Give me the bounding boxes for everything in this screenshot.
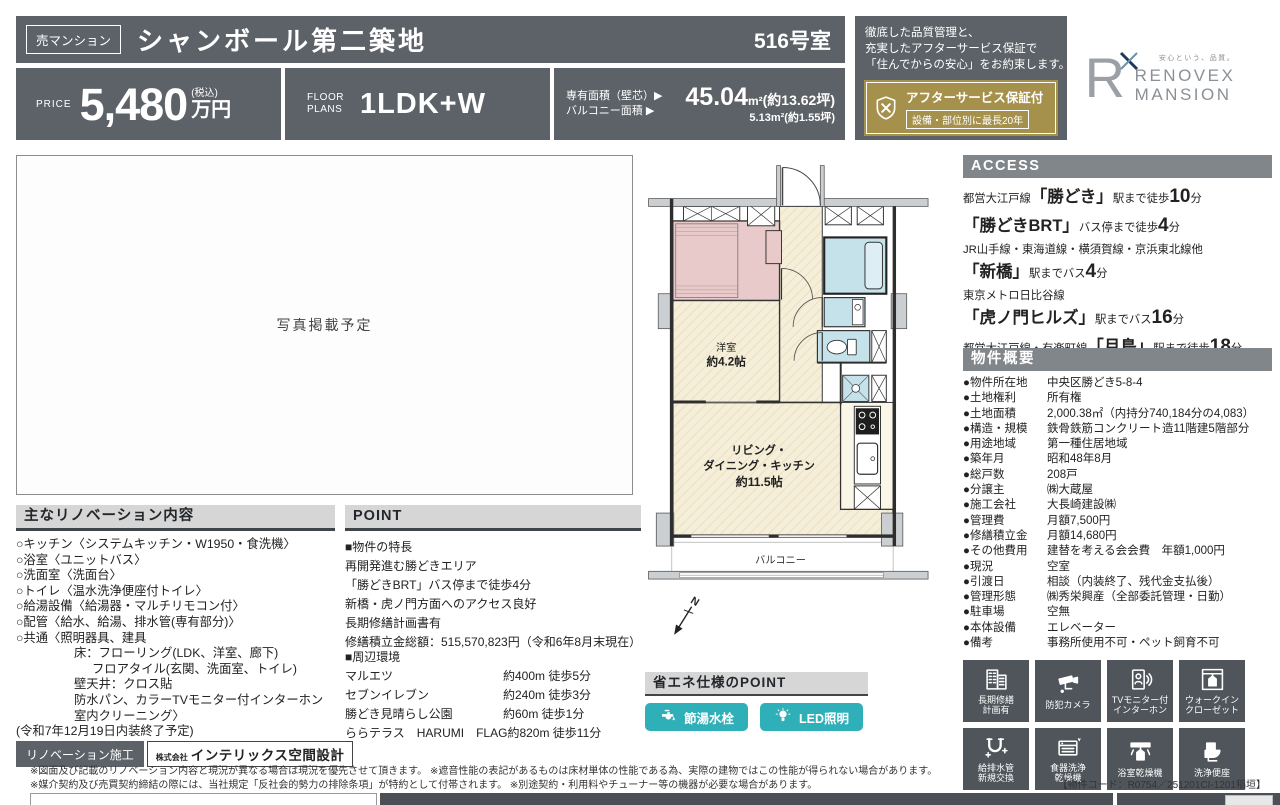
property-code: 【物件コード：R0754／251201CI-1201稲垣】	[1058, 776, 1270, 791]
footer-line-2: ※媒介契約及び売買契約締結の際には、当社規定「反社会的勢力の排除条項」が特約とし…	[30, 776, 1270, 791]
floor-plan-value: 1LDK+W	[360, 88, 486, 121]
overview-row: ●構造・規模鉄骨鉄筋コンクリート造11階建5階部分	[963, 422, 1271, 437]
overview-heading: 物件概要	[963, 348, 1272, 371]
floor-label-line2: PLANS	[307, 104, 342, 115]
overview-row: ●施工会社大長崎建設㈱	[963, 498, 1271, 513]
route-text: JR山手線・東海道線・横須賀線・京浜東北線他	[963, 241, 1203, 257]
overview-row: ●修繕積立金月額14,680円	[963, 529, 1271, 544]
pipe-replacement-icon	[984, 735, 1009, 760]
station-name: 「虎ノ門ヒルズ」	[963, 304, 1095, 328]
station-name: 「勝どきBRT」	[963, 212, 1079, 236]
overview-label: ●築年月	[963, 452, 1047, 467]
assurance-text: 徹底した品質管理と、 充実したアフターサービス保証で 「住んでからの安心」をお約…	[855, 16, 1067, 73]
renovation-item: ○給湯設備〈給湯器・マルチリモコン付〉	[16, 599, 346, 615]
svg-text:N: N	[688, 595, 701, 609]
assurance-line1: 徹底した品質管理と、	[865, 27, 980, 39]
access-route: 「勝どきBRT」バス停まで徒歩4分	[963, 212, 1268, 237]
overview-value: 月額7,500円	[1047, 514, 1271, 529]
renovation-item: ○キッチン〈システムキッチン・W1950・食洗機〉	[16, 537, 346, 553]
point-heading: POINT	[345, 505, 641, 531]
access-route: 東京メトロ日比谷線「虎ノ門ヒルズ」駅までバス16分	[963, 287, 1268, 329]
overview-row: ●物件所在地中央区勝どき5-8-4	[963, 376, 1271, 391]
overview-row: ●分譲主㈱大蔵屋	[963, 483, 1271, 498]
overview-row: ●本体設備エレベーター	[963, 621, 1271, 636]
renovation-heading: 主なリノベーション内容	[16, 505, 335, 531]
exclusive-area-value: 45.04	[685, 83, 748, 111]
bulb-icon	[774, 707, 792, 728]
feature-item: 新橋・虎ノ門方面へのアクセス良好	[345, 595, 645, 614]
floor-plans-label: FLOOR PLANS	[307, 92, 344, 116]
feature-item: 再開発進む勝どきエリア	[345, 557, 645, 576]
surrounding-name: 勝どき見晴らし公園	[345, 705, 503, 724]
overview-value: 事務所使用不可・ペット飼育不可	[1047, 636, 1271, 651]
area-box: 専有面積（壁芯）▶ バルコニー面積 ▶ 45.04m²(約13.62坪) 5.1…	[554, 68, 845, 140]
eco-button-label: LED照明	[799, 708, 849, 727]
photo-placeholder-text: 写真掲載予定	[277, 315, 373, 335]
feature-tile-label-line: インターホン	[1112, 705, 1169, 715]
balcony-area-label: バルコニー面積 ▶	[566, 105, 654, 117]
overview-value: 月額14,680円	[1047, 529, 1271, 544]
ldk-label-2: ダイニング・キッチン	[703, 458, 815, 472]
tv-intercom-icon	[1128, 667, 1153, 692]
badge-subtitle: 設備・部位別に最長20年	[906, 110, 1029, 129]
access-route: JR山手線・東海道線・横須賀線・京浜東北線他「新橋」駅までバス4分	[963, 241, 1268, 283]
surrounding-name: セブンイレブン	[345, 686, 503, 705]
assurance-box: 徹底した品質管理と、 充実したアフターサービス保証で 「住んでからの安心」をお約…	[855, 16, 1067, 140]
feature-tile: 防犯カメラ	[1035, 660, 1101, 722]
brand-text: 安心という、品質。 RENOVEX MANSION	[1135, 53, 1236, 104]
footer-bar-dark	[380, 793, 1113, 805]
minutes-value: 4	[1158, 215, 1169, 237]
exclusive-area-tsubo: (約13.62坪)	[763, 92, 835, 108]
photo-placeholder: 写真掲載予定	[16, 155, 633, 495]
overview-value: 2,000.38㎡（内持分740,184分の4,083）	[1047, 407, 1271, 422]
overview-row: ●土地権利所有権	[963, 391, 1271, 406]
surroundings-heading: ■周辺環境	[345, 648, 645, 667]
feature-item: 「勝どきBRT」バス停まで徒歩4分	[345, 576, 645, 595]
features-list: 再開発進む勝どきエリア「勝どきBRT」バス停まで徒歩4分新橋・虎ノ門方面へのアク…	[345, 557, 645, 652]
overview-value: 相談（内装終了、残代金支払後）	[1047, 575, 1271, 590]
overview-value: 第一種住居地域	[1047, 437, 1271, 452]
floor-plan: 洋室 約4.2帖 リビング・ ダイニング・キッチン 約11.5帖 バルコニー N	[633, 150, 963, 650]
feature-item: 長期修繕計画書有	[345, 614, 645, 633]
route-text: 駅までバス	[1029, 265, 1086, 281]
exclusive-area-unit: m²	[748, 94, 763, 108]
balcony-label: バルコニー	[755, 555, 806, 567]
rx-mark: R	[1085, 47, 1129, 109]
price-value: 5,480	[80, 82, 188, 127]
overview-value: ㈱大蔵屋	[1047, 483, 1271, 498]
overview-row: ●管理費月額7,500円	[963, 514, 1271, 529]
shield-tools-icon	[873, 95, 899, 121]
overview-value: 大長崎建設㈱	[1047, 498, 1271, 513]
eco-heading: 省エネ仕様のPOINT	[645, 672, 868, 696]
surrounding-row: 勝どき見晴らし公園約60m 徒歩1分	[345, 705, 645, 724]
surroundings-block: ■周辺環境 マルエツ約400m 徒歩5分セブンイレブン約240m 徒歩3分勝どき…	[345, 648, 645, 743]
footer-note-2: ※媒介契約及び売買契約締結の際には、当社規定「反社会的勢力の排除条項」が特約とし…	[30, 776, 817, 791]
assurance-line2: 充実したアフターサービス保証で	[865, 43, 1037, 55]
overview-row: ●総戸数208戸	[963, 468, 1271, 483]
overview-row: ●築年月昭和48年8月	[963, 452, 1271, 467]
feature-tile: TVモニター付インターホン	[1107, 660, 1173, 722]
overview-value: ㈱秀栄興産（全部委託管理・日勤）	[1047, 590, 1271, 605]
overview-label: ●駐車場	[963, 605, 1047, 620]
surrounding-row: マルエツ約400m 徒歩5分	[345, 667, 645, 686]
ldk-size: 約11.5帖	[736, 474, 783, 489]
surrounding-name: ららテラス HARUMI FLAG	[345, 724, 507, 743]
price-label: PRICE	[36, 99, 72, 110]
feature-tile: ウォークインクローゼット	[1179, 660, 1245, 722]
minutes-value: 10	[1169, 186, 1190, 208]
feature-tile-label-line: 計画有	[978, 705, 1014, 715]
renovation-item: ○浴室〈ユニットバス〉	[16, 553, 346, 569]
overview-value: 中央区勝どき5-8-4	[1047, 376, 1271, 391]
overview-label: ●管理形態	[963, 590, 1047, 605]
renovation-item: ○配管〈給水、給湯、排水管(専有部分)〉	[16, 615, 346, 631]
overview-table: ●物件所在地中央区勝どき5-8-4●土地権利所有権●土地面積2,000.38㎡（…	[963, 376, 1271, 651]
room-number: 516号室	[754, 25, 831, 55]
surrounding-distance: 約60m 徒歩1分	[503, 705, 584, 724]
eco-buttons: 節湯水栓LED照明	[645, 703, 863, 731]
faucet-icon	[659, 707, 677, 728]
surrounding-row: セブンイレブン約240m 徒歩3分	[345, 686, 645, 705]
price-tax-note: (税込)	[191, 88, 231, 99]
overview-value: 建替を考える会会費 年額1,000円	[1047, 544, 1271, 559]
building-title: シャンボール第二築地	[137, 21, 427, 58]
area-values: 45.04m²(約13.62坪) 5.13m²(約1.55坪)	[670, 83, 835, 125]
access-line: JR山手線・東海道線・横須賀線・京浜東北線他	[963, 241, 1268, 257]
feature-tile-label: 長期修繕計画有	[978, 695, 1014, 715]
surroundings-list: マルエツ約400m 徒歩5分セブンイレブン約240m 徒歩3分勝どき見晴らし公園…	[345, 667, 645, 743]
north-arrow-icon: N	[670, 594, 702, 637]
route-text: バス停まで徒歩	[1079, 219, 1158, 235]
access-line: 「新橋」駅までバス4分	[963, 258, 1268, 283]
overview-value: 鉄骨鉄筋コンクリート造11階建5階部分	[1047, 422, 1271, 437]
floor-label-line1: FLOOR	[307, 92, 344, 103]
title-bar: 売マンション シャンボール第二築地 516号室	[16, 16, 845, 63]
overview-row: ●引渡日相談（内装終了、残代金支払後）	[963, 575, 1271, 590]
overview-label: ●構造・規模	[963, 422, 1047, 437]
feature-tile-label-line: TVモニター付	[1112, 695, 1169, 705]
renovation-item: (令和7年12月19日内装終了予定)	[16, 724, 346, 740]
overview-value: 昭和48年8月	[1047, 452, 1271, 467]
surrounding-distance: 約820m 徒歩11分	[507, 724, 601, 743]
surrounding-distance: 約240m 徒歩3分	[503, 686, 591, 705]
renovation-item: ○トイレ〈温水洗浄便座付トイレ〉	[16, 584, 346, 600]
route-text: 分	[1169, 219, 1180, 235]
surrounding-distance: 約400m 徒歩5分	[503, 667, 591, 686]
renovation-item: 室内クリーニング〉	[16, 709, 346, 725]
assurance-line3: 「住んでからの安心」をお約束します。	[865, 59, 1070, 71]
overview-value: エレベーター	[1047, 621, 1271, 636]
minutes-value: 4	[1086, 261, 1097, 283]
overview-label: ●土地権利	[963, 391, 1047, 406]
renovation-item: ○洗面室〈洗面台〉	[16, 568, 346, 584]
overview-row: ●現況空室	[963, 560, 1271, 575]
access-route: 都営大江戸線「勝どき」駅まで徒歩10分	[963, 183, 1268, 208]
area-labels: 専有面積（壁芯）▶ バルコニー面積 ▶	[566, 89, 662, 119]
flyer-page: 売マンション シャンボール第二築地 516号室 PRICE 5,480 (税込)…	[0, 0, 1280, 805]
eco-button-label: 節湯水栓	[684, 708, 734, 727]
feature-tile: 長期修繕計画有	[963, 660, 1029, 722]
overview-row: ●その他費用建替を考える会会費 年額1,000円	[963, 544, 1271, 559]
overview-label: ●施工会社	[963, 498, 1047, 513]
brand-tagline: 安心という、品質。	[1135, 53, 1236, 63]
route-text: 駅まで徒歩	[1113, 190, 1170, 206]
access-heading: ACCESS	[963, 155, 1272, 178]
overview-value: 空無	[1047, 605, 1271, 620]
security-camera-icon	[1056, 672, 1081, 697]
access-line: 「勝どきBRT」バス停まで徒歩4分	[963, 212, 1268, 237]
eco-button: 節湯水栓	[645, 703, 748, 731]
route-text: 駅までバス	[1095, 311, 1152, 327]
overview-value: 空室	[1047, 560, 1271, 575]
footer-note-1: ※図面及び記載のリノベーション内容と現況が異なる場合は現況を優先させて頂きます。…	[30, 762, 1270, 777]
overview-label: ●分譲主	[963, 483, 1047, 498]
price-box: PRICE 5,480 (税込) 万円	[16, 68, 281, 140]
route-text: 分	[1173, 311, 1184, 327]
overview-label: ●修繕積立金	[963, 529, 1047, 544]
west-room-size: 約4.2帖	[706, 355, 746, 369]
features-heading: ■物件の特長	[345, 538, 645, 557]
access-line: 都営大江戸線「勝どき」駅まで徒歩10分	[963, 183, 1268, 208]
renovation-item: フロアタイル(玄関、洗面室、トイレ)	[16, 662, 346, 678]
feature-tile-label: TVモニター付インターホン	[1112, 695, 1169, 715]
access-line: 東京メトロ日比谷線	[963, 287, 1268, 303]
overview-label: ●現況	[963, 560, 1047, 575]
feature-tile-label-line: 長期修繕	[978, 695, 1014, 705]
balcony-area-value: 5.13m²(約1.55坪)	[749, 112, 835, 124]
surrounding-name: マルエツ	[345, 667, 503, 686]
renovex-logo: R 安心という、品質。 RENOVEX MANSION	[1077, 16, 1243, 140]
logo-x-icon	[1119, 51, 1139, 71]
overview-label: ●物件所在地	[963, 376, 1047, 391]
route-text: 都営大江戸線	[963, 190, 1031, 206]
overview-row: ●備考事務所使用不可・ペット飼育不可	[963, 636, 1271, 651]
overview-row: ●土地面積2,000.38㎡（内持分740,184分の4,083）	[963, 407, 1271, 422]
station-name: 「新橋」	[963, 258, 1029, 282]
overview-label: ●本体設備	[963, 621, 1047, 636]
building-repair-icon	[984, 667, 1009, 692]
overview-label: ●管理費	[963, 514, 1047, 529]
minutes-value: 16	[1152, 307, 1173, 329]
eco-button: LED照明	[760, 703, 863, 731]
exclusive-area-label: 専有面積（壁芯）▶	[566, 90, 662, 102]
features-block: ■物件の特長 再開発進む勝どきエリア「勝どきBRT」バス停まで徒歩4分新橋・虎ノ…	[345, 538, 645, 652]
feature-tile-label-line: ウォークイン	[1185, 695, 1239, 705]
brand-name-2: MANSION	[1135, 85, 1236, 104]
company-name: インテリックス空間設計	[191, 744, 345, 764]
access-line: 「虎ノ門ヒルズ」駅までバス16分	[963, 304, 1268, 329]
route-text: 分	[1096, 265, 1107, 281]
route-text: 東京メトロ日比谷線	[963, 287, 1065, 303]
access-list: 都営大江戸線「勝どき」駅まで徒歩10分「勝どきBRT」バス停まで徒歩4分JR山手…	[963, 183, 1268, 362]
surrounding-row: ららテラス HARUMI FLAG約820m 徒歩11分	[345, 724, 645, 743]
feature-tile-label: ウォークインクローゼット	[1185, 695, 1239, 715]
overview-row: ●管理形態㈱秀栄興産（全部委託管理・日勤）	[963, 590, 1271, 605]
ldk-label-1: リビング・	[731, 443, 787, 457]
overview-value: 所有権	[1047, 391, 1271, 406]
after-service-badge: アフターサービス保証付 設備・部位別に最長20年	[864, 80, 1058, 136]
overview-label: ●総戸数	[963, 468, 1047, 483]
feature-tile-label: 防犯カメラ	[1045, 700, 1090, 710]
station-name: 「勝どき」	[1031, 183, 1113, 207]
renovation-list: ○キッチン〈システムキッチン・W1950・食洗機〉○浴室〈ユニットバス〉○洗面室…	[16, 537, 346, 740]
price-unit-group: (税込) 万円	[191, 88, 231, 121]
overview-label: ●引渡日	[963, 575, 1047, 590]
route-text: 分	[1190, 190, 1201, 206]
overview-label: ●土地面積	[963, 407, 1047, 422]
renovation-item: ○共通〈照明器具、建具	[16, 631, 346, 647]
west-room-label: 洋室	[716, 341, 736, 354]
brand-name-1: RENOVEX	[1135, 66, 1236, 85]
renovation-item: 床：フローリング(LDK、洋室、廊下)	[16, 646, 346, 662]
renovation-item: 壁天井：クロス貼	[16, 677, 346, 693]
overview-label: ●その他費用	[963, 544, 1047, 559]
floor-plan-box: FLOOR PLANS 1LDK+W	[285, 68, 550, 140]
feature-tile-label-line: クローゼット	[1185, 705, 1239, 715]
dishwasher-icon	[1056, 735, 1081, 760]
badge-text: アフターサービス保証付 設備・部位別に最長20年	[906, 87, 1043, 129]
overview-label: ●備考	[963, 636, 1047, 651]
footer-bar-white-box	[30, 793, 377, 805]
renovation-item: 防水パン、カラーTVモニター付インターホン	[16, 693, 346, 709]
overview-row: ●駐車場空無	[963, 605, 1271, 620]
property-type-badge: 売マンション	[26, 25, 121, 54]
badge-title: アフターサービス保証付	[906, 91, 1043, 105]
overview-row: ●用途地域第一種住居地域	[963, 437, 1271, 452]
footer-bar-small-box	[1225, 795, 1273, 805]
overview-label: ●用途地域	[963, 437, 1047, 452]
price-unit: 万円	[191, 99, 231, 121]
walkin-closet-icon	[1200, 667, 1225, 692]
overview-value: 208戸	[1047, 468, 1271, 483]
feature-tile-label-line: 防犯カメラ	[1045, 700, 1090, 710]
